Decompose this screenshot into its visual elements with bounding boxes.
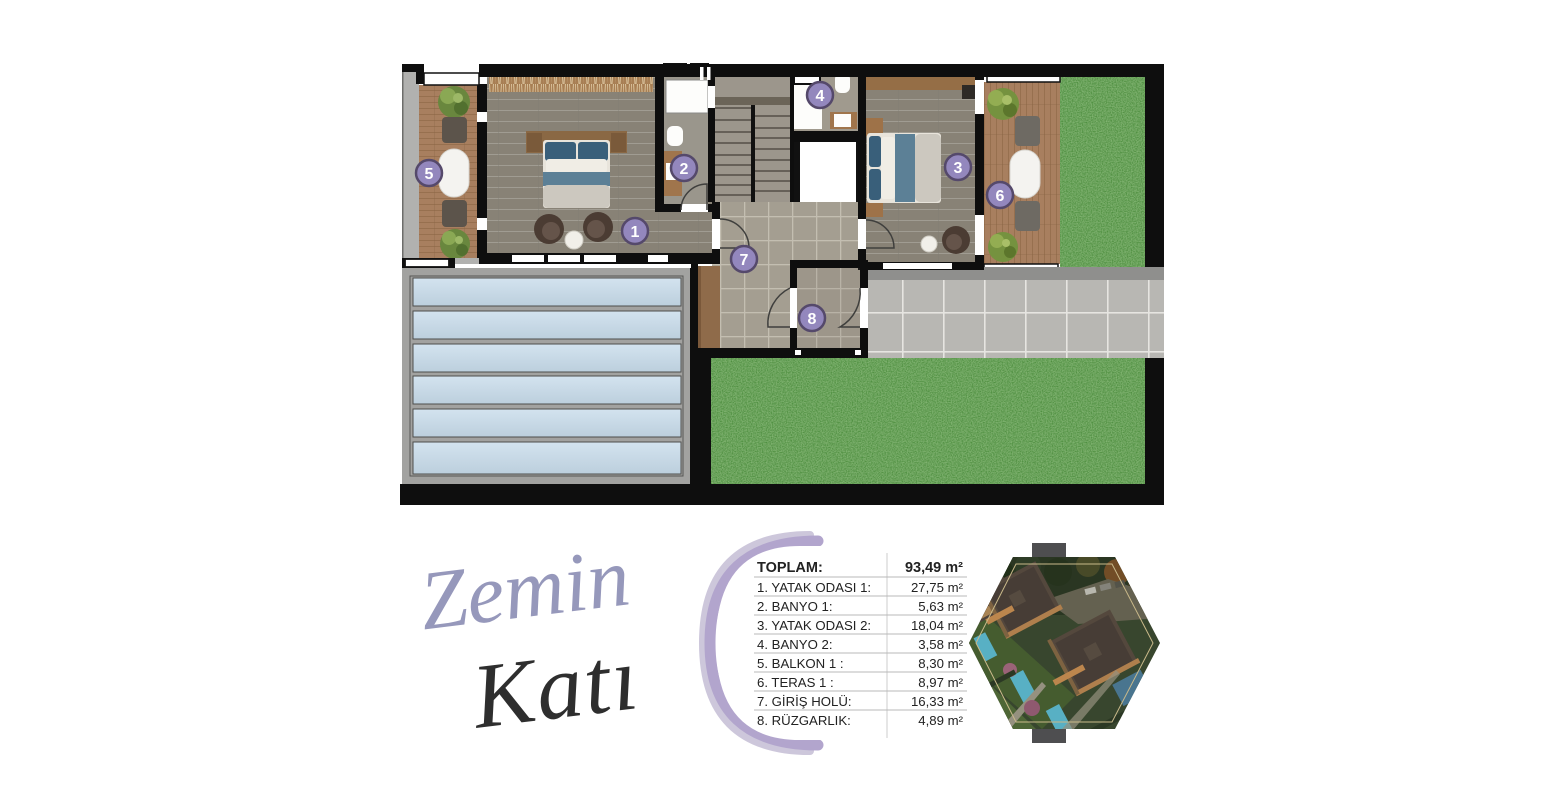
svg-text:5: 5	[425, 166, 434, 183]
svg-text:2. BANYO 1:: 2. BANYO 1:	[757, 599, 833, 614]
svg-text:3: 3	[954, 160, 963, 177]
svg-text:5. BALKON 1 :: 5. BALKON 1 :	[757, 656, 844, 671]
svg-text:1. YATAK ODASI 1:: 1. YATAK ODASI 1:	[757, 580, 871, 595]
svg-text:7: 7	[740, 252, 749, 269]
svg-text:6. TERAS 1 :: 6. TERAS 1 :	[757, 675, 834, 690]
svg-text:Katı: Katı	[465, 626, 645, 748]
svg-text:8: 8	[808, 311, 817, 328]
svg-text:8. RÜZGARLIK:: 8. RÜZGARLIK:	[757, 713, 851, 728]
svg-text:1: 1	[631, 224, 640, 241]
svg-text:TOPLAM:: TOPLAM:	[757, 560, 823, 576]
svg-text:8,30 m²: 8,30 m²	[918, 656, 963, 671]
svg-text:4. BANYO 2:: 4. BANYO 2:	[757, 637, 833, 652]
svg-text:7. GİRİŞ HOLÜ:: 7. GİRİŞ HOLÜ:	[757, 694, 852, 709]
svg-text:3. YATAK ODASI 2:: 3. YATAK ODASI 2:	[757, 618, 871, 633]
svg-text:6: 6	[996, 188, 1005, 205]
svg-text:18,04 m²: 18,04 m²	[911, 618, 964, 633]
svg-text:93,49 m²: 93,49 m²	[905, 560, 963, 576]
svg-text:2: 2	[680, 161, 689, 178]
svg-text:27,75 m²: 27,75 m²	[911, 580, 964, 595]
svg-text:8,97 m²: 8,97 m²	[918, 675, 963, 690]
svg-text:16,33 m²: 16,33 m²	[911, 694, 964, 709]
svg-text:4: 4	[816, 88, 825, 105]
svg-text:5,63 m²: 5,63 m²	[918, 599, 963, 614]
svg-text:3,58 m²: 3,58 m²	[918, 637, 963, 652]
svg-text:4,89 m²: 4,89 m²	[918, 713, 963, 728]
